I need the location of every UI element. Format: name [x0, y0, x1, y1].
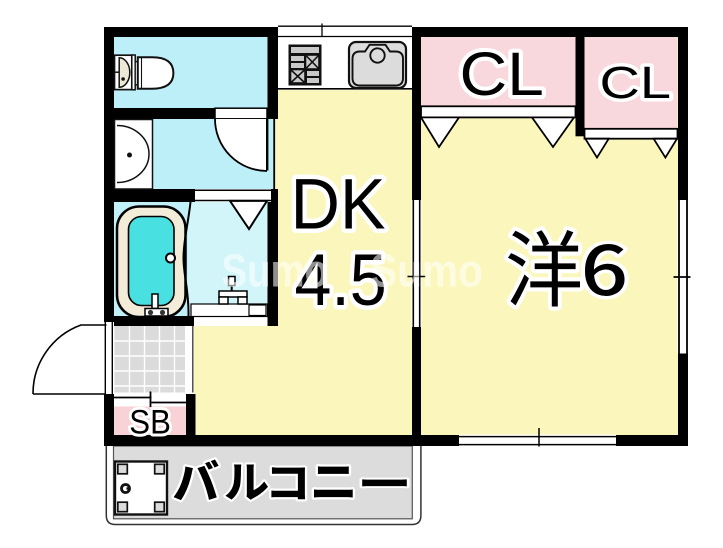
- svg-text:CL: CL: [460, 40, 544, 108]
- svg-text:DK: DK: [291, 164, 386, 244]
- svg-text:SB: SB: [129, 403, 171, 441]
- svg-text:CL: CL: [600, 57, 672, 108]
- svg-text:Sumo: Sumo: [222, 245, 329, 297]
- svg-text:Sumo: Sumo: [370, 245, 483, 297]
